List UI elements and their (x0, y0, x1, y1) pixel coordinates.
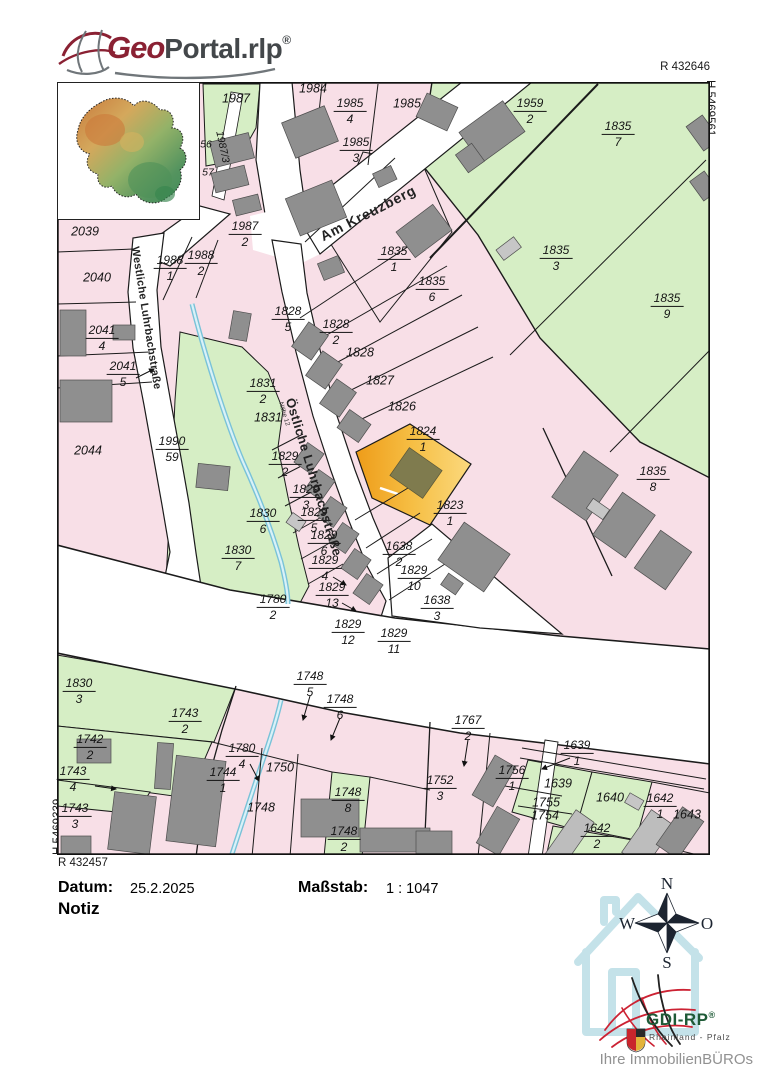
parcel-label-1642-1: 16421 (644, 792, 677, 820)
parcel-label-1780-2: 17802 (257, 593, 290, 621)
parcel-label-1826: 1826 (388, 400, 416, 413)
state-overview-inset (57, 82, 200, 220)
parcel-label-1959-2: 19592 (514, 97, 547, 125)
parcel-label-1831: 1831 (254, 411, 282, 424)
parcel-label-1984: 1984 (299, 82, 327, 95)
gdi-rp-logo-text: GDI-RP® (646, 1010, 716, 1030)
notiz-label: Notiz (58, 899, 100, 919)
logo-text-portal: Portal.rlp (164, 33, 282, 64)
parcel-label-1835-9: 18359 (651, 292, 684, 320)
logo-text-geo: Geo (107, 30, 164, 65)
parcel-label-1743-2: 17432 (169, 707, 202, 735)
parcel-label-1756-1: 17561 (496, 764, 529, 792)
compass-south-label: S (662, 953, 671, 973)
parcel-label-1642-2: 16422 (581, 822, 614, 850)
parcel-label-1828-2: 18282 (320, 318, 353, 346)
parcel-label-1835-1: 18351 (378, 245, 411, 273)
parcel-label-2040: 2040 (83, 271, 111, 284)
parcel-label-1748-5: 17485 (294, 670, 327, 698)
credit-text: Ihre ImmobilienBÜROs (600, 1051, 753, 1068)
parcel-label-1987-2: 19872 (229, 220, 262, 248)
parcel-label-57: 57 (202, 167, 214, 178)
parcel-label-1985: 1985 (393, 97, 421, 110)
parcel-label-1987: 1987 (222, 92, 250, 105)
parcel-label-1748-2: 17482 (328, 825, 361, 853)
parcel-label-1748: 1748 (247, 801, 275, 814)
parcel-label-2041-5: 20415 (107, 360, 140, 388)
parcel-label-1835-7: 18357 (602, 120, 635, 148)
parcel-label-1828: 1828 (346, 346, 374, 359)
parcel-label-1640: 1640 (596, 791, 624, 804)
rlp-coat-of-arms-icon (627, 1029, 645, 1052)
parcel-label-1830-7: 18307 (222, 544, 255, 572)
parcel-label-1990-59: 199059 (156, 435, 189, 463)
parcel-label-1829-12: 182912 (332, 618, 365, 646)
parcel-label-1835-6: 18356 (416, 275, 449, 303)
parcel-label-1830-3: 18303 (63, 677, 96, 705)
parcel-label-2044: 2044 (74, 444, 102, 457)
massstab-value: 1 : 1047 (386, 881, 438, 897)
parcel-label-1639-1: 16391 (561, 739, 594, 767)
parcel-label-1752-3: 17523 (424, 774, 457, 802)
logo-registered-mark: ® (282, 33, 291, 47)
parcel-label-2039: 2039 (71, 225, 99, 238)
datum-label: Datum: (58, 879, 113, 897)
parcel-label-1824-1: 18241 (407, 425, 440, 453)
compass-west-label: W (619, 914, 635, 934)
parcel-label-56: 56 (200, 139, 212, 150)
parcel-label-1831-2: 18312 (247, 377, 280, 405)
parcel-label-2041-4: 20414 (86, 324, 119, 352)
parcel-label-1985-4: 19854 (334, 97, 367, 125)
parcel-label-1750: 1750 (266, 761, 294, 774)
parcel-label-1829-11: 182911 (378, 627, 411, 655)
gdi-registered-mark: ® (709, 1010, 716, 1020)
parcel-label-1988-1: 19881 (154, 254, 187, 282)
parcel-label-1748-8: 17488 (332, 786, 365, 814)
parcel-label-1985-3: 19853 (340, 136, 373, 164)
parcel-label-1827: 1827 (366, 374, 394, 387)
datum-value: 25.2.2025 (130, 881, 195, 897)
parcel-label-1829-10: 182910 (398, 564, 431, 592)
parcel-label-1643: 1643 (673, 808, 701, 821)
coord-label-r-bottom: R 432457 (58, 857, 108, 869)
parcel-label-1828-5: 18285 (272, 305, 305, 333)
parcel-label-1638-3: 16383 (421, 594, 454, 622)
parcel-label-1767-2: 17672 (452, 714, 485, 742)
coord-label-r-top: R 432646 (660, 61, 710, 73)
parcel-label-1829-2: 18292 (269, 450, 302, 478)
parcel-label-1742-2: 17422 (74, 733, 107, 761)
parcel-label-1829-13: 182913 (316, 581, 349, 609)
gdi-region-text: Rheinland - Pfalz (649, 1032, 731, 1042)
parcel-label-1743-3: 17433 (59, 802, 92, 830)
compass-north-label: N (661, 874, 673, 894)
parcel-label-1835-8: 18358 (637, 465, 670, 493)
parcel-label-1744-1: 17441 (207, 766, 240, 794)
geoportal-map-page: GeoPortal.rlp® R 432646 H 5469561 H 5469… (0, 0, 763, 1080)
parcel-label-1754: 1754 (531, 809, 559, 822)
parcel-label-1823-1: 18231 (434, 499, 467, 527)
parcel-label-1743-4: 17434 (57, 765, 90, 793)
compass-east-label: O (701, 914, 713, 934)
parcel-label-1780-4: 17804 (226, 742, 259, 770)
geoportal-logo: GeoPortal.rlp® (57, 24, 357, 80)
parcel-label-1835-3: 18353 (540, 244, 573, 272)
parcel-label-1639: 1639 (544, 777, 572, 790)
parcel-label-1829-4: 18294 (309, 554, 342, 582)
parcel-label-1830-6: 18306 (247, 507, 280, 535)
parcel-label-1748-6: 17486 (324, 693, 357, 721)
massstab-label: Maßstab: (298, 879, 368, 897)
parcel-label-1988-2: 19882 (185, 249, 218, 277)
